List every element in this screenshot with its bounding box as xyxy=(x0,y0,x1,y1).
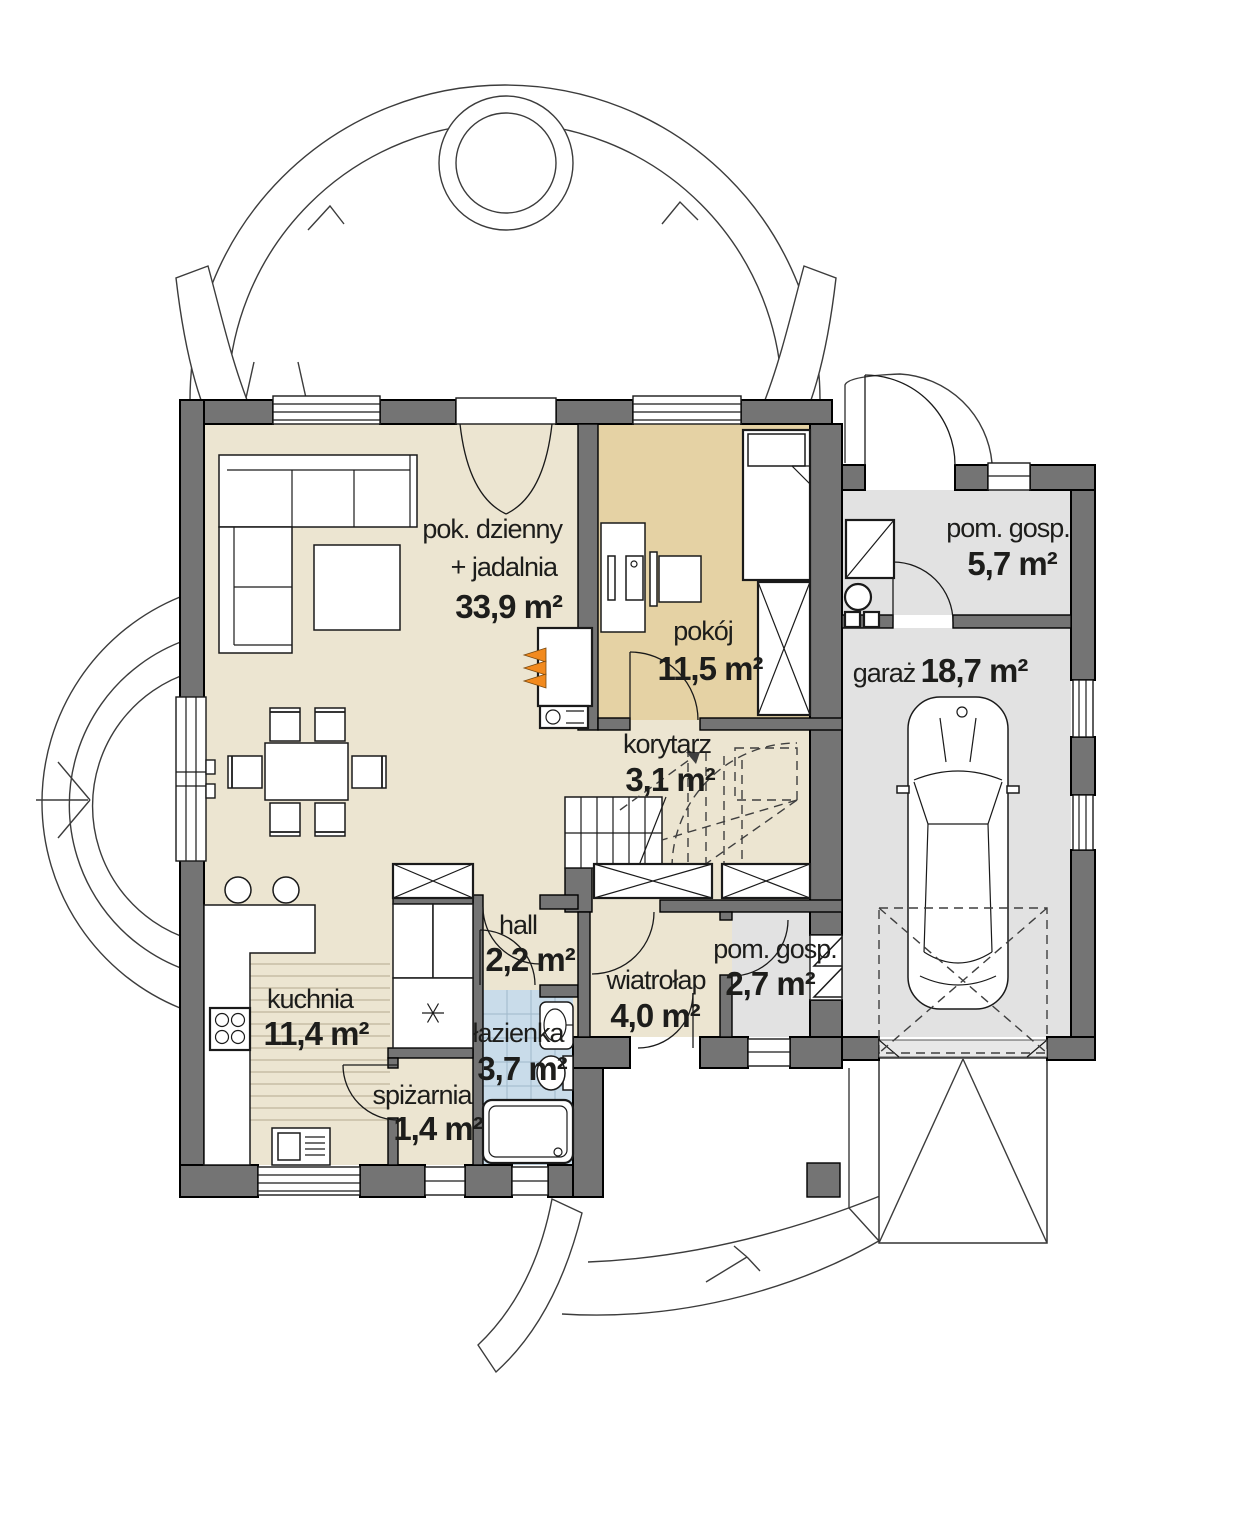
label-garaz-name: garaż xyxy=(853,658,916,688)
label-living-name2: + jadalnia xyxy=(451,552,559,582)
bathtub xyxy=(483,1100,573,1163)
label-korytarz-name: korytarz xyxy=(623,729,712,759)
label-wiatrolap-area: 4,0 m² xyxy=(610,997,700,1034)
label-kuchnia-name: kuchnia xyxy=(267,984,355,1014)
wardrobe-pokoj xyxy=(758,582,810,715)
desk-chair xyxy=(650,552,701,606)
kitchen-tall-cabinets xyxy=(393,904,473,1048)
garage-door xyxy=(879,1040,1047,1057)
label-korytarz-area: 3,1 m² xyxy=(625,761,715,798)
label-living-area: 33,9 m² xyxy=(455,588,563,625)
car xyxy=(897,697,1019,1009)
roof-turret-circle xyxy=(439,96,573,230)
window-pom-gosp-bottom-wall xyxy=(748,1039,790,1066)
fridge-cabinet xyxy=(393,864,473,898)
bar-stool-1 xyxy=(225,877,251,903)
cooktop xyxy=(210,1008,250,1050)
boiler xyxy=(846,520,894,578)
chimney xyxy=(807,1163,840,1197)
car-mirror-left xyxy=(897,786,909,793)
label-garaz-area: 18,7 m² xyxy=(921,652,1029,689)
label-pom-gosp-bottom-name: pom. gosp. xyxy=(713,934,837,964)
label-pom-gosp-top-area: 5,7 m² xyxy=(967,545,1057,582)
utility-box-1 xyxy=(845,612,860,627)
closet-corridor-1 xyxy=(594,864,712,898)
entry-canopy xyxy=(845,374,992,463)
floor-plan-canvas: pok. dzienny + jadalnia 33,9 m² pokój 11… xyxy=(0,0,1253,1537)
main-entrance-door xyxy=(865,375,955,465)
desk xyxy=(601,523,645,632)
label-spizarnia-name: spiżarnia xyxy=(372,1080,473,1110)
label-spizarnia-area: 1,4 m² xyxy=(393,1110,483,1147)
coffee-table xyxy=(314,545,400,630)
car-mirror-right xyxy=(1007,786,1019,793)
label-pokoj-area: 11,5 m² xyxy=(658,650,764,687)
label-pom-gosp-bottom-area: 2,7 m² xyxy=(725,965,815,1002)
bed xyxy=(743,430,810,580)
closet-corridor-2 xyxy=(722,864,810,898)
label-lazienka-name: łazienka xyxy=(472,1018,565,1048)
label-kuchnia-area: 11,4 m² xyxy=(264,1015,370,1052)
label-hall-name: hall xyxy=(499,910,537,940)
roof-flare-right xyxy=(765,266,836,400)
window-pokoj-top xyxy=(633,396,741,424)
utility-sink xyxy=(845,584,871,610)
window-pom-gosp-top-wall xyxy=(988,463,1030,490)
floor-plan-page: pok. dzienny + jadalnia 33,9 m² pokój 11… xyxy=(0,0,1253,1537)
label-pokoj-name: pokój xyxy=(673,616,733,646)
bar-stool-2 xyxy=(273,877,299,903)
utility-box-2 xyxy=(864,612,879,627)
oven-cabinet xyxy=(272,1128,330,1165)
window-living-top xyxy=(273,396,380,424)
window-spizarnia-bottom xyxy=(425,1167,465,1195)
window-garage-right-2 xyxy=(1073,795,1093,850)
label-lazienka-area: 3,7 m² xyxy=(477,1050,567,1087)
window-kitchen-bottom xyxy=(258,1167,360,1195)
label-hall-area: 2,2 m² xyxy=(485,941,575,978)
driveway-gable xyxy=(879,1058,1047,1243)
window-garage-right-1 xyxy=(1073,680,1093,737)
label-pom-gosp-top-name: pom. gosp. xyxy=(946,513,1070,543)
label-living-name1: pok. dzienny xyxy=(422,514,563,544)
label-wiatrolap-name: wiatrołap xyxy=(605,965,705,995)
terrace-wedge xyxy=(478,1199,582,1372)
window-bathroom-bottom xyxy=(512,1167,548,1195)
